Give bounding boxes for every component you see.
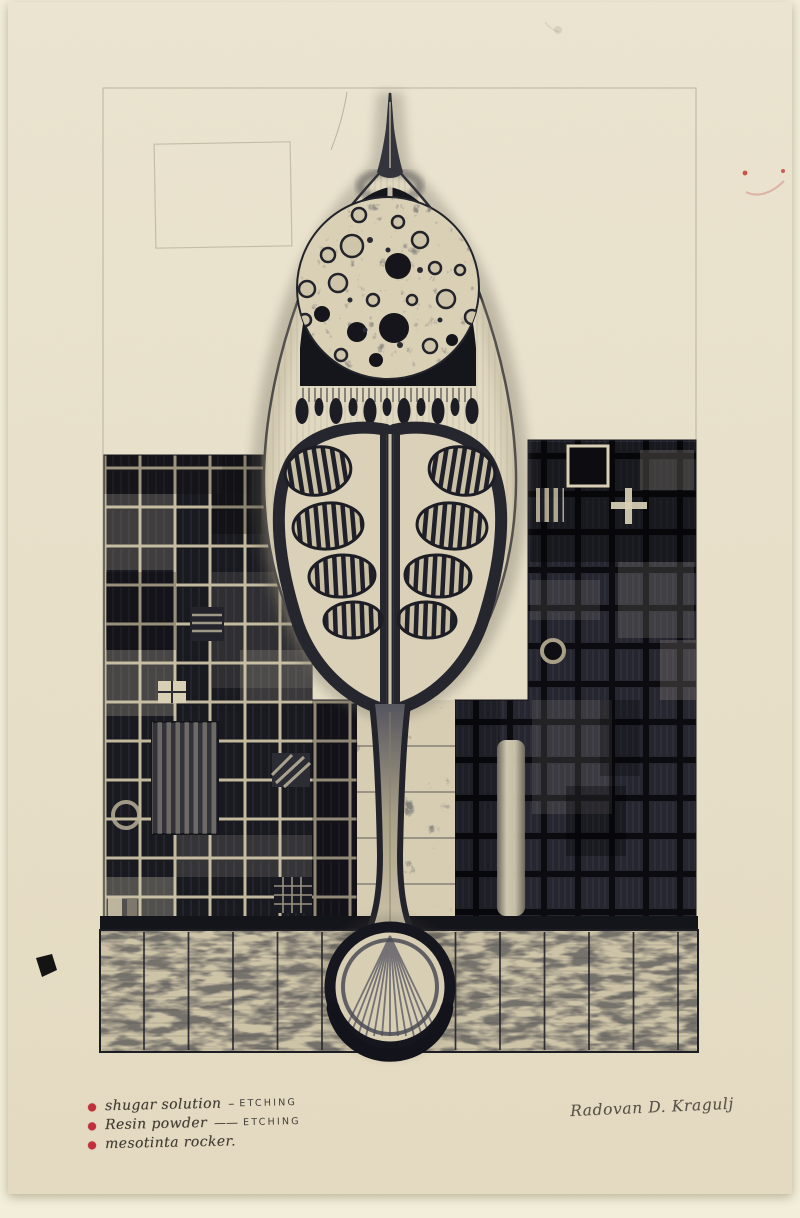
root-bulb (324, 921, 456, 1055)
legend-connector: —— (214, 1115, 238, 1129)
bullet-dot-icon (88, 1103, 96, 1111)
legend-label: Resin powder (105, 1115, 207, 1134)
legend-technique: ETCHING (239, 1097, 297, 1109)
scanned-artwork: shugar solution – ETCHING Resin powder —… (0, 0, 800, 1218)
legend-technique: ETCHING (243, 1116, 301, 1128)
legend-label: mesotinta rocker. (105, 1133, 236, 1153)
legend-connector: – (228, 1096, 234, 1110)
technique-legend: shugar solution – ETCHING Resin powder —… (88, 1095, 418, 1152)
bullet-dot-icon (88, 1141, 96, 1149)
legend-label: shugar solution (105, 1096, 222, 1115)
seed-pod-drawing (0, 0, 800, 1218)
bullet-dot-icon (88, 1122, 96, 1130)
